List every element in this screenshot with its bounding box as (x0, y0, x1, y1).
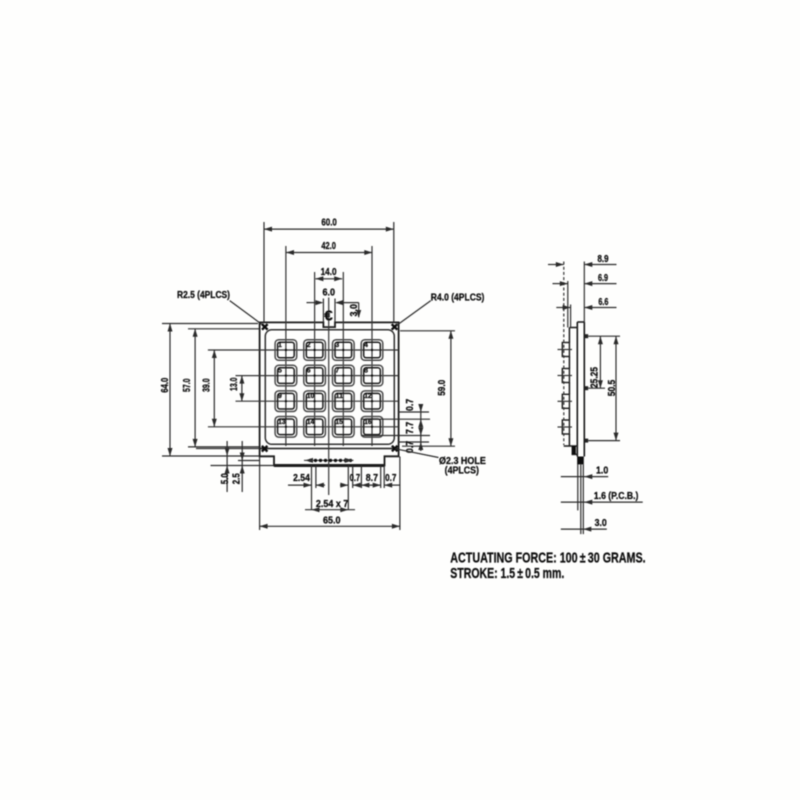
svg-text:1.6 (P.C.B.): 1.6 (P.C.B.) (594, 491, 639, 502)
svg-text:8.9: 8.9 (598, 254, 609, 265)
svg-text:6.9: 6.9 (598, 273, 608, 284)
svg-text:8.7: 8.7 (366, 472, 378, 484)
svg-text:6: 6 (307, 368, 311, 375)
svg-text:16: 16 (364, 419, 372, 426)
svg-text:11: 11 (335, 393, 343, 400)
svg-text:€: € (324, 308, 333, 325)
svg-text:3: 3 (335, 342, 339, 349)
svg-text:4: 4 (364, 342, 368, 349)
svg-text:R2.5 (4PLCS): R2.5 (4PLCS) (177, 289, 230, 301)
svg-text:14.0: 14.0 (321, 266, 337, 278)
svg-text:50.5: 50.5 (607, 379, 618, 396)
svg-text:64.0: 64.0 (159, 378, 171, 393)
svg-text:7.7: 7.7 (404, 422, 416, 434)
svg-text:39.0: 39.0 (200, 378, 212, 392)
svg-text:2.54 x 7: 2.54 x 7 (316, 498, 349, 510)
svg-text:0.7: 0.7 (385, 472, 396, 484)
svg-text:3.0: 3.0 (595, 518, 608, 529)
svg-text:0.7: 0.7 (404, 399, 416, 411)
svg-text:65.0: 65.0 (323, 515, 341, 527)
svg-text:R4.0 (4PLCS): R4.0 (4PLCS) (431, 292, 485, 304)
svg-text:2.5: 2.5 (231, 473, 243, 484)
svg-text:59.0: 59.0 (436, 380, 448, 396)
svg-text:57.0: 57.0 (181, 378, 193, 392)
svg-text:0.7: 0.7 (350, 472, 361, 484)
svg-text:25.25: 25.25 (589, 367, 600, 388)
svg-text:12: 12 (364, 393, 372, 400)
svg-text:STROKE: 1.5 ± 0.5 mm.: STROKE: 1.5 ± 0.5 mm. (450, 566, 564, 582)
svg-text:6.0: 6.0 (323, 287, 336, 299)
svg-text:1: 1 (278, 342, 282, 349)
svg-text:(4PLCS): (4PLCS) (445, 465, 479, 477)
svg-text:14: 14 (307, 419, 315, 426)
svg-text:8: 8 (364, 368, 368, 375)
svg-text:10: 10 (307, 393, 315, 400)
svg-text:5.0: 5.0 (219, 473, 231, 484)
svg-text:1.0: 1.0 (596, 465, 609, 476)
svg-text:2.54: 2.54 (293, 472, 310, 484)
svg-text:9: 9 (278, 393, 282, 400)
svg-text:13.0: 13.0 (228, 377, 240, 391)
svg-text:6.6: 6.6 (598, 297, 608, 308)
svg-text:13: 13 (278, 419, 286, 426)
svg-text:60.0: 60.0 (321, 216, 337, 228)
svg-text:3.0: 3.0 (348, 304, 360, 317)
svg-text:15: 15 (335, 419, 343, 426)
svg-text:7: 7 (335, 368, 339, 375)
svg-text:ACTUATING FORCE: 100 ± 30 GRAM: ACTUATING FORCE: 100 ± 30 GRAMS. (450, 550, 645, 566)
svg-text:2: 2 (307, 342, 311, 349)
svg-text:5: 5 (278, 368, 282, 375)
svg-text:42.0: 42.0 (321, 240, 336, 252)
